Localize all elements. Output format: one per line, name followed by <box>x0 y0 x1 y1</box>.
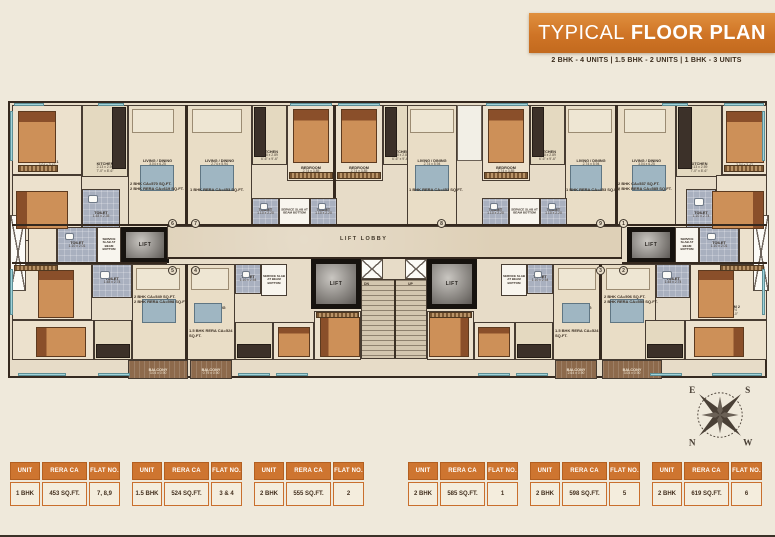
bed <box>36 327 86 357</box>
room-recess <box>457 105 482 161</box>
plan-text: 2 BHK CA=537 SQ.FT. 2 BHK RERA CA=585 SQ… <box>618 181 674 191</box>
plan-text: 1 BHK RERA CA=453 SQ.FT. <box>190 187 246 192</box>
bed <box>694 327 744 357</box>
room-label: TOILET1.10 x 2.74 <box>687 211 715 219</box>
unit-table-header: UNIT <box>652 462 682 480</box>
room-label: TOILET1.48 x 2.35 <box>83 211 119 219</box>
unit-table-header: UNIT <box>408 462 438 480</box>
room-label: SERVICE SLAB AT BEAM BOTTOM <box>280 209 309 216</box>
kitchen-counter <box>96 344 130 358</box>
toilet-fixture <box>548 203 556 210</box>
flat-number: 1 <box>619 219 628 228</box>
room-toilet: TOILET1.10 x 2.01 <box>699 227 739 263</box>
flat-number: 5 <box>168 266 177 275</box>
wardrobe <box>484 172 528 179</box>
bed <box>341 109 377 163</box>
room-service-slab-at-beam-bottom: SERVICE SLAB AT BEAM BOTTOM <box>501 264 527 296</box>
plan-text: DN <box>364 282 384 287</box>
toilet-fixture <box>260 203 268 210</box>
toilet-fixture <box>534 271 542 278</box>
dining-table <box>194 303 222 323</box>
page-title-bold: FLOOR PLAN <box>631 22 766 45</box>
compass-west: W <box>743 439 753 449</box>
room-toilet: TOILET1.10 x 2.54 <box>527 264 553 294</box>
wall <box>622 262 767 264</box>
window <box>478 373 510 376</box>
window <box>10 269 13 315</box>
sofa <box>624 109 666 133</box>
room-service-slab-at-beam-bottom: SERVICE SLAB AT BEAM BOTTOM <box>675 227 699 263</box>
window <box>14 103 44 106</box>
room-service-slab-at-beam-bottom: SERVICE SLAB AT BEAM BOTTOM <box>279 198 310 226</box>
room-balcony: BALCONY0.79 x 0.90 <box>190 360 232 379</box>
unit-table-header: UNIT <box>254 462 284 480</box>
window <box>762 111 765 161</box>
room-lift: LIFT <box>121 227 169 263</box>
room-label: TOILET1.10 x 2.01 <box>58 241 96 249</box>
bed <box>488 109 524 163</box>
sofa <box>132 109 174 133</box>
sofa <box>606 268 650 290</box>
wardrobe <box>18 165 58 172</box>
room-toilet: TOILET1.48 x 2.74 <box>656 264 690 298</box>
unit-cell: 1 BHK <box>10 482 40 506</box>
window <box>338 103 380 106</box>
unit-cell: 2 BHK <box>408 482 438 506</box>
flat-no-cell: 3 & 4 <box>211 482 242 506</box>
wardrobe <box>724 165 764 172</box>
lift-label: LIFT <box>313 261 359 307</box>
compass-south: S <box>745 386 750 396</box>
unit-cell: 1.5 BHK <box>132 482 162 506</box>
window <box>762 269 765 315</box>
unit-table-header: RERA CA <box>440 462 485 480</box>
wall <box>333 105 336 198</box>
unit-table: UNITRERA CAFLAT NO.2 BHK619 SQ.FT.6 <box>652 462 760 506</box>
room-label: SERVICE SLAB AT BEAM BOTTOM <box>262 275 286 285</box>
compass-north: N <box>689 439 696 449</box>
unit-cell: 2 BHK <box>530 482 560 506</box>
kitchen-counter <box>112 107 126 169</box>
room-balcony: BALCONY3.04 x 0.90 <box>602 360 662 379</box>
wall <box>167 257 622 259</box>
kitchen-counter <box>237 344 271 358</box>
plan-text: 2 BHK CA=570 SQ.FT. 2 BHK RERA CA=619 SQ… <box>130 181 186 191</box>
window <box>290 103 332 106</box>
flat-number: 3 <box>596 266 605 275</box>
room-shaft <box>405 259 427 279</box>
room-balcony: BALCONY3.04 x 0.90 <box>128 360 188 379</box>
plan-text: 1 BHK RERA CA=453 SQ.FT. <box>566 187 622 192</box>
plan-text: 1.5 BHK RERA CA=524 SQ.FT. <box>189 328 245 338</box>
unit-table-header: RERA CA <box>286 462 331 480</box>
bed <box>429 317 469 357</box>
room-label: TOILET1.10 x 2.01 <box>700 241 738 249</box>
wardrobe <box>289 172 333 179</box>
sofa <box>410 109 454 133</box>
unit-cell: 2 BHK <box>652 482 682 506</box>
room-toilet: TOILET1.10 x 2.01 <box>57 227 97 263</box>
flat-no-cell: 2 <box>333 482 364 506</box>
sofa <box>558 268 596 290</box>
unit-table-header: FLAT NO. <box>487 462 518 480</box>
plan-text: 2 BHK CA=549 SQ.FT. 2 BHK RERA CA=598 SQ… <box>134 294 190 304</box>
window <box>662 103 688 106</box>
bed <box>278 327 310 357</box>
wall <box>12 224 767 226</box>
flat-number: 2 <box>619 266 628 275</box>
unit-summary: 2 BHK - 4 UNITS | 1.5 BHK - 2 UNITS | 1 … <box>518 57 775 64</box>
wardrobe <box>14 265 58 271</box>
unit-cell: 2 BHK <box>254 482 284 506</box>
wall <box>599 264 602 360</box>
unit-table: UNITRERA CAFLAT NO.2 BHK585 SQ.FT.1 <box>408 462 516 506</box>
window <box>712 373 762 376</box>
room-toilet: TOILET1.48 x 2.74 <box>92 264 132 298</box>
room-label: BALCONY0.79 x 0.90 <box>191 368 231 376</box>
room-lift: LIFT <box>427 259 477 309</box>
wall <box>12 262 167 264</box>
wall <box>615 105 618 226</box>
room-toilet: TOILET1.10 x 2.54 <box>235 264 261 294</box>
plan-text: 2 BHK CA=506 SQ.FT. 2 BHK RERA CA=555 SQ… <box>604 294 660 304</box>
title-banner: TYPICAL FLOOR PLAN <box>529 13 775 53</box>
kitchen-counter <box>254 107 266 157</box>
wardrobe <box>720 265 764 271</box>
unit-table: UNITRERA CAFLAT NO.2 BHK555 SQ.FT.2 <box>254 462 362 506</box>
flat-number: 9 <box>596 219 605 228</box>
dining-table <box>562 303 590 323</box>
window <box>98 103 124 106</box>
room-label: SERVICE SLAB AT BEAM BOTTOM <box>502 275 526 285</box>
room-service-slab-at-beam-bottom: SERVICE SLAB AT BEAM BOTTOM <box>509 198 540 226</box>
room-shaft <box>361 259 383 279</box>
window <box>10 111 13 161</box>
bed <box>698 270 734 318</box>
toilet-fixture <box>318 203 326 210</box>
plan-text: LIFT LOBBY <box>340 236 430 243</box>
room-label: BALCONY2.64 x 0.90 <box>556 368 596 376</box>
room-service-slab-at-beam-bottom: SERVICE SLAB AT BEAM BOTTOM <box>97 227 121 263</box>
window <box>276 373 308 376</box>
toilet-fixture <box>242 271 250 278</box>
rera-cell: 598 SQ.FT. <box>562 482 607 506</box>
window <box>98 373 130 376</box>
toilet-fixture <box>662 271 672 279</box>
wall <box>185 264 188 360</box>
rera-cell: 453 SQ.FT. <box>42 482 87 506</box>
bed <box>478 327 510 357</box>
wardrobe <box>316 312 359 318</box>
window <box>724 103 764 106</box>
flat-number: 7 <box>191 219 200 228</box>
window <box>650 373 682 376</box>
lift-label: LIFT <box>123 229 167 261</box>
floor-plan: BEDROOM 13.04 x 3.4210'-0" x 11'-3"KITCH… <box>8 101 767 378</box>
kitchen-counter <box>647 344 683 358</box>
room-label: SERVICE SLAB AT BEAM BOTTOM <box>98 238 120 252</box>
unit-table-header: UNIT <box>132 462 162 480</box>
flat-no-cell: 6 <box>731 482 762 506</box>
plan-text: 1.5 BHK RERA CA=524 SQ.FT. <box>555 328 611 338</box>
sofa <box>192 109 242 133</box>
rera-cell: 524 SQ.FT. <box>164 482 209 506</box>
toilet-fixture <box>707 233 716 240</box>
compass-rose: E S N W <box>683 378 757 452</box>
bed <box>726 111 764 163</box>
unit-table: UNITRERA CAFLAT NO.1.5 BHK524 SQ.FT.3 & … <box>132 462 240 506</box>
wardrobe <box>429 312 472 318</box>
compass-east: E <box>689 386 695 396</box>
bed <box>293 109 329 163</box>
toilet-fixture <box>694 198 704 206</box>
unit-table-header: UNIT <box>530 462 560 480</box>
room-lift: LIFT <box>311 259 361 309</box>
kitchen-counter <box>517 344 551 358</box>
room-room <box>28 227 57 263</box>
lift-label: LIFT <box>429 261 475 307</box>
unit-table-header: RERA CA <box>562 462 607 480</box>
bed <box>320 317 360 357</box>
flat-number: 6 <box>168 219 177 228</box>
window <box>18 373 66 376</box>
room-stairs <box>361 279 427 359</box>
bed <box>18 111 56 163</box>
unit-table-header: FLAT NO. <box>731 462 762 480</box>
room-label: BALCONY3.04 x 0.90 <box>129 368 187 376</box>
unit-table-header: FLAT NO. <box>89 462 120 480</box>
room-service-slab-at-beam-bottom: SERVICE SLAB AT BEAM BOTTOM <box>261 264 287 296</box>
unit-table-header: FLAT NO. <box>609 462 640 480</box>
unit-table-header: FLAT NO. <box>333 462 364 480</box>
bed <box>38 270 74 318</box>
room-label: SERVICE SLAB AT BEAM BOTTOM <box>510 209 539 216</box>
unit-table-header: RERA CA <box>42 462 87 480</box>
wardrobe <box>337 172 381 179</box>
rera-cell: 555 SQ.FT. <box>286 482 331 506</box>
lift-label: LIFT <box>629 229 673 261</box>
rera-cell: 619 SQ.FT. <box>684 482 729 506</box>
toilet-fixture <box>65 233 74 240</box>
toilet-fixture <box>88 195 98 203</box>
unit-table-header: RERA CA <box>684 462 729 480</box>
flat-number: 8 <box>437 219 446 228</box>
room-label: TOILET1.48 x 2.74 <box>93 277 131 285</box>
flat-no-cell: 5 <box>609 482 640 506</box>
unit-table-header: UNIT <box>10 462 40 480</box>
unit-table-header: FLAT NO. <box>211 462 242 480</box>
unit-table: UNITRERA CAFLAT NO.2 BHK598 SQ.FT.5 <box>530 462 638 506</box>
flat-no-cell: 1 <box>487 482 518 506</box>
window <box>486 103 528 106</box>
flat-number: 4 <box>191 266 200 275</box>
room-balcony: BALCONY2.64 x 0.90 <box>555 360 597 379</box>
kitchen-counter <box>385 107 397 157</box>
rera-cell: 585 SQ.FT. <box>440 482 485 506</box>
window <box>238 373 270 376</box>
window <box>516 373 548 376</box>
floor-plan-page: { "header": { "title_light": "TYPICAL", … <box>0 0 775 537</box>
wall <box>185 105 188 226</box>
plan-text: UP <box>408 282 428 287</box>
unit-table-header: RERA CA <box>164 462 209 480</box>
kitchen-counter <box>532 107 544 157</box>
sofa <box>568 109 612 133</box>
room-lift: LIFT <box>627 227 675 263</box>
plan-text: 1 BHK RERA CA=453 SQ.FT. <box>409 187 465 192</box>
toilet-fixture <box>100 271 110 279</box>
flat-no-cell: 7, 8,9 <box>89 482 120 506</box>
page-title-light: TYPICAL <box>538 22 625 45</box>
unit-table: UNITRERA CAFLAT NO.1 BHK453 SQ.FT.7, 8,9 <box>10 462 118 506</box>
room-label: SERVICE SLAB AT BEAM BOTTOM <box>676 238 698 252</box>
kitchen-counter <box>678 107 692 169</box>
toilet-fixture <box>490 203 498 210</box>
